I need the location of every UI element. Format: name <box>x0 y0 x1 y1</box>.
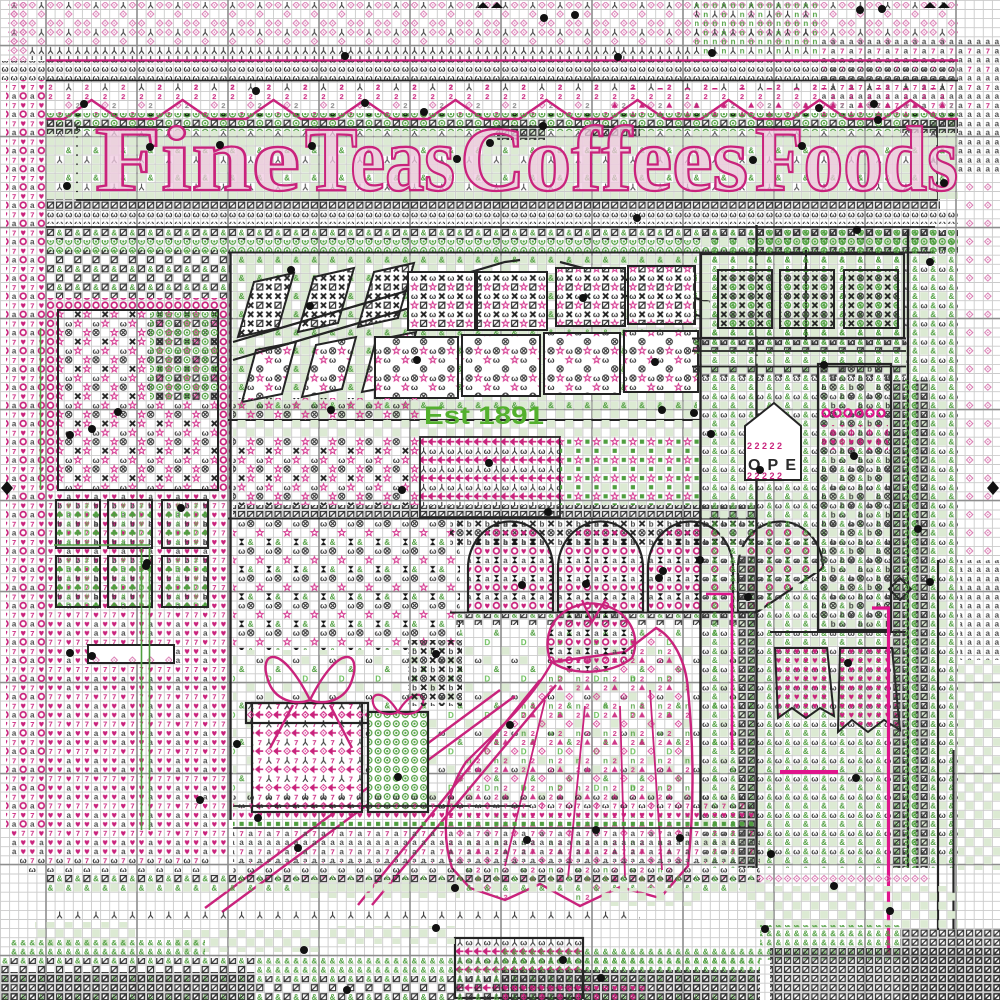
svg-text:Coffees: Coffees <box>460 108 748 210</box>
svg-text:Est 1891: Est 1891 <box>424 402 544 430</box>
svg-text:Fine: Fine <box>95 108 300 210</box>
svg-text:Foods: Foods <box>755 108 958 210</box>
svg-text:2 2 2 2 2: 2 2 2 2 2 <box>747 441 782 451</box>
svg-text:Teas: Teas <box>305 108 455 210</box>
svg-text:2 2 2 2 2: 2 2 2 2 2 <box>747 471 782 481</box>
